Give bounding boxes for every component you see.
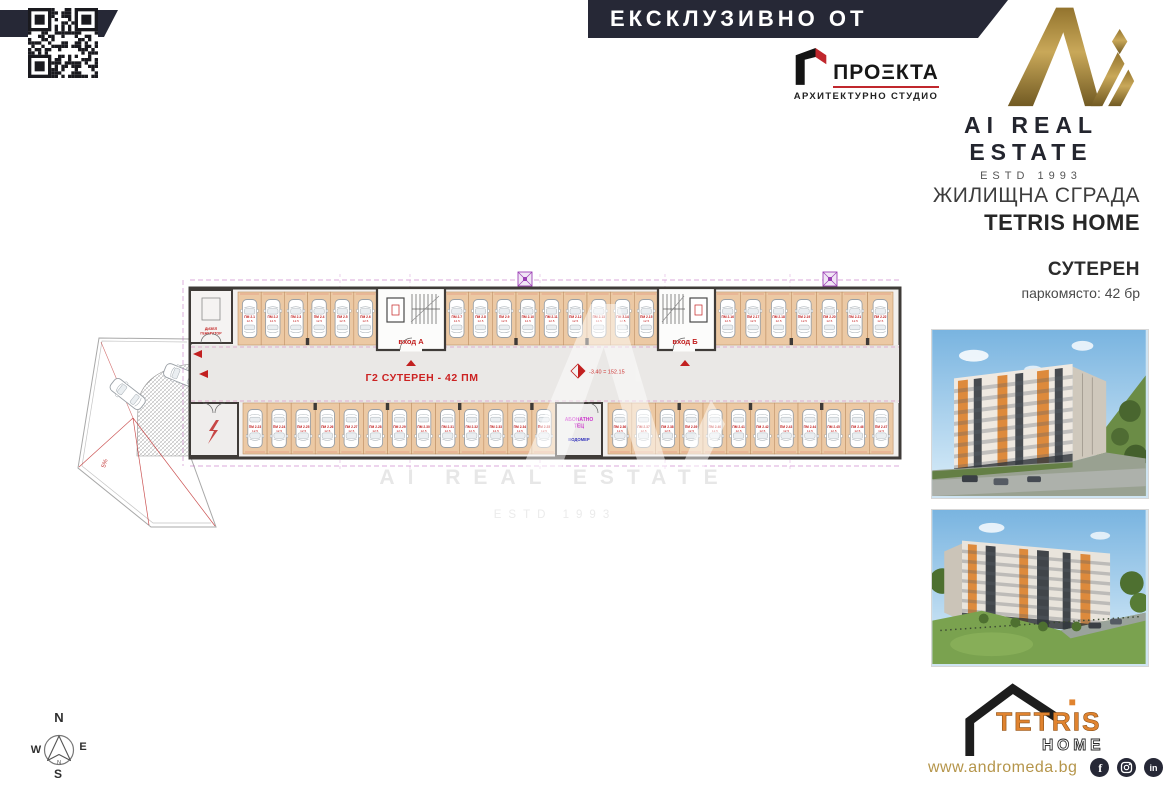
svg-text:12.5: 12.5 <box>270 319 276 323</box>
svg-text:S: S <box>54 767 62 780</box>
ramp-slope-label: 5% <box>101 458 110 469</box>
parking-stall: ПМ 2.4112.5 <box>727 403 751 454</box>
parking-stall: ПМ 2.2912.5 <box>386 403 412 454</box>
qr-code <box>28 8 98 78</box>
architect-name: ПРОΞКТА <box>833 61 939 88</box>
parking-stall: ПМ 2.3112.5 <box>436 403 460 454</box>
parking-stall: ПМ 2.4212.5 <box>749 403 775 454</box>
svg-text:12.5: 12.5 <box>421 429 427 433</box>
architect-logo-icon <box>793 44 829 88</box>
parking-stall: ПМ 2.4312.5 <box>774 403 798 454</box>
parking-stall: ПМ 2.2012.5 <box>817 292 842 345</box>
linkedin-icon[interactable]: in <box>1144 758 1163 777</box>
building-type: ЖИЛИЩНА СГРАДА <box>905 184 1140 208</box>
svg-text:E: E <box>79 741 86 753</box>
parking-stall: ПМ 2.3312.5 <box>484 403 508 454</box>
facebook-icon[interactable]: f <box>1090 758 1109 777</box>
parking-stall: ПМ 2.912.5 <box>492 292 516 345</box>
section-marker-2 <box>823 272 837 286</box>
svg-text:N: N <box>57 761 61 767</box>
svg-text:12.5: 12.5 <box>339 319 345 323</box>
svg-text:12.5: 12.5 <box>664 429 670 433</box>
parking-stall: ПМ 2.2212.5 <box>866 292 893 345</box>
parking-stall: ПМ 2.2812.5 <box>363 403 387 454</box>
level-title: СУТЕРЕН <box>905 259 1140 281</box>
svg-text:12.5: 12.5 <box>688 429 694 433</box>
svg-text:12.5: 12.5 <box>877 319 883 323</box>
svg-text:12.5: 12.5 <box>477 319 483 323</box>
brand-name: AI REAL ESTATE <box>900 112 1162 166</box>
parking-stall: ПМ 2.1612.5 <box>715 292 740 345</box>
svg-text:12.5: 12.5 <box>501 319 507 323</box>
generator-room: ДИЗЕЛ ГЕНЕРАТОР <box>190 290 232 343</box>
svg-text:ГЕНЕРАТОР: ГЕНЕРАТОР <box>200 332 222 336</box>
instagram-icon[interactable] <box>1117 758 1136 777</box>
svg-text:12.5: 12.5 <box>801 319 807 323</box>
svg-text:12.5: 12.5 <box>831 429 837 433</box>
compass-north-arrow: N W E S N <box>30 710 88 780</box>
parking-stall: ПМ 2.1112.5 <box>540 292 564 345</box>
parking-stall: ПМ 2.2612.5 <box>314 403 340 454</box>
building-render-photo-1 <box>931 329 1149 499</box>
entrance-a-label: вход А <box>398 337 424 346</box>
svg-text:12.5: 12.5 <box>300 429 306 433</box>
svg-text:f: f <box>1098 761 1103 775</box>
svg-text:W: W <box>31 744 42 756</box>
svg-text:12.5: 12.5 <box>493 429 499 433</box>
svg-text:12.5: 12.5 <box>293 319 299 323</box>
parking-stall: ПМ 2.712.5 <box>445 292 469 345</box>
svg-text:12.5: 12.5 <box>750 319 756 323</box>
svg-text:ДИЗЕЛ: ДИЗЕЛ <box>205 327 218 331</box>
parking-count: паркомясто: 42 бр <box>905 285 1140 301</box>
architect-logo: ПРОΞКТА АРХИТЕКТУРНО СТУДИО <box>786 44 946 102</box>
svg-text:12.5: 12.5 <box>454 319 460 323</box>
svg-text:12.5: 12.5 <box>725 319 731 323</box>
svg-text:12.5: 12.5 <box>362 319 368 323</box>
brochure-page: ЕКСКЛУЗИВНО ОТ ПРОΞКТА АРХИТЕКТУРНО СТУД… <box>0 0 1170 785</box>
entrance-b-label: вход Б <box>672 337 698 346</box>
svg-text:12.5: 12.5 <box>783 429 789 433</box>
parking-stall: ПМ 2.4412.5 <box>798 403 822 454</box>
brand-wordmark: AI REAL ESTATE ESTD 1993 <box>900 112 1162 182</box>
parking-stall: ПМ 2.412.5 <box>306 292 331 345</box>
website-link[interactable]: www.andromeda.bg <box>928 759 1082 777</box>
svg-text:12.5: 12.5 <box>316 319 322 323</box>
parking-stall: ПМ 2.1012.5 <box>514 292 539 345</box>
tetris-logo-word: TETRIS <box>996 707 1101 737</box>
svg-text:12.5: 12.5 <box>517 429 523 433</box>
building-name: TETRIS HOME <box>905 210 1140 236</box>
brand-estd: ESTD 1993 <box>900 170 1162 182</box>
architect-subtitle: АРХИТЕКТУРНО СТУДИО <box>786 91 946 102</box>
parking-stall: ПМ 2.512.5 <box>331 292 354 345</box>
plan-title: Г2 СУТЕРЕН - 42 ПМ <box>366 372 479 384</box>
tetris-home-logo: TETRIS HOME <box>952 676 1132 758</box>
parking-stall: ПМ 2.3412.5 <box>508 403 532 454</box>
parking-stall: ПМ 2.612.5 <box>354 292 377 345</box>
parking-stall: ПМ 2.2112.5 <box>842 292 867 345</box>
parking-stall: ПМ 2.4712.5 <box>869 403 893 454</box>
parking-stall: ПМ 2.212.5 <box>261 292 284 345</box>
tetris-logo-home: HOME <box>1042 737 1104 754</box>
parking-stall: ПМ 2.112.5 <box>238 292 261 345</box>
svg-text:12.5: 12.5 <box>469 429 475 433</box>
svg-text:12.5: 12.5 <box>852 319 858 323</box>
level-heading: СУТЕРЕН паркомясто: 42 бр <box>905 259 1140 301</box>
parking-stall: ПМ 2.1812.5 <box>766 292 791 345</box>
svg-text:12.5: 12.5 <box>826 319 832 323</box>
section-marker-1 <box>518 272 532 286</box>
parking-stall: ПМ 2.2512.5 <box>291 403 315 454</box>
svg-text:12.5: 12.5 <box>572 319 578 323</box>
parking-stall: ПМ 2.4612.5 <box>846 403 870 454</box>
svg-text:12.5: 12.5 <box>247 319 253 323</box>
svg-text:12.5: 12.5 <box>276 429 282 433</box>
parking-stall: ПМ 2.2412.5 <box>267 403 291 454</box>
footer-links: www.andromeda.bg f in <box>928 758 1163 777</box>
svg-text:12.5: 12.5 <box>854 429 860 433</box>
svg-text:N: N <box>54 710 63 725</box>
svg-text:12.5: 12.5 <box>348 429 354 433</box>
parking-stall: ПМ 2.2312.5 <box>243 403 267 454</box>
watermark-text: AI REAL ESTATE <box>379 466 730 489</box>
building-render-photo-2 <box>931 509 1149 667</box>
svg-text:-3.40 = 152.15: -3.40 = 152.15 <box>589 370 625 376</box>
svg-text:12.5: 12.5 <box>807 429 813 433</box>
svg-text:12.5: 12.5 <box>776 319 782 323</box>
floor-plan: 5% ПМ 2.112.5ПМ 2.212.5ПМ 2.312.5П <box>75 268 905 530</box>
svg-text:12.5: 12.5 <box>759 429 765 433</box>
svg-text:12.5: 12.5 <box>617 429 623 433</box>
project-heading: ЖИЛИЩНА СГРАДА TETRIS HOME <box>905 184 1140 236</box>
parking-stall: ПМ 2.812.5 <box>469 292 493 345</box>
exclusive-banner-label: ЕКСКЛУЗИВНО ОТ <box>610 6 867 31</box>
exclusive-banner: ЕКСКЛУЗИВНО ОТ <box>588 0 1008 38</box>
parking-stall: ПМ 2.1712.5 <box>740 292 765 345</box>
drive-aisle <box>191 345 899 403</box>
svg-text:12.5: 12.5 <box>736 429 742 433</box>
svg-text:12.5: 12.5 <box>525 319 531 323</box>
svg-text:in: in <box>1150 763 1158 773</box>
watermark-estd: ESTD 1993 <box>494 509 616 521</box>
parking-stall: ПМ 2.1512.5 <box>634 292 658 345</box>
svg-text:12.5: 12.5 <box>396 429 402 433</box>
parking-stall: ПМ 2.4512.5 <box>820 403 846 454</box>
parking-stall: ПМ 2.312.5 <box>284 292 307 345</box>
svg-text:12.5: 12.5 <box>324 429 330 433</box>
parking-stall: ПМ 2.2712.5 <box>339 403 363 454</box>
svg-text:12.5: 12.5 <box>372 429 378 433</box>
svg-text:12.5: 12.5 <box>643 319 649 323</box>
parking-stall: ПМ 2.3212.5 <box>458 403 484 454</box>
electrical-room <box>190 403 238 456</box>
svg-text:12.5: 12.5 <box>878 429 884 433</box>
svg-text:12.5: 12.5 <box>548 319 554 323</box>
svg-text:12.5: 12.5 <box>445 429 451 433</box>
parking-stall: ПМ 2.3012.5 <box>412 403 436 454</box>
svg-text:12.5: 12.5 <box>252 429 258 433</box>
brand-monogram-icon <box>998 2 1143 110</box>
parking-stall: ПМ 2.1912.5 <box>790 292 817 345</box>
